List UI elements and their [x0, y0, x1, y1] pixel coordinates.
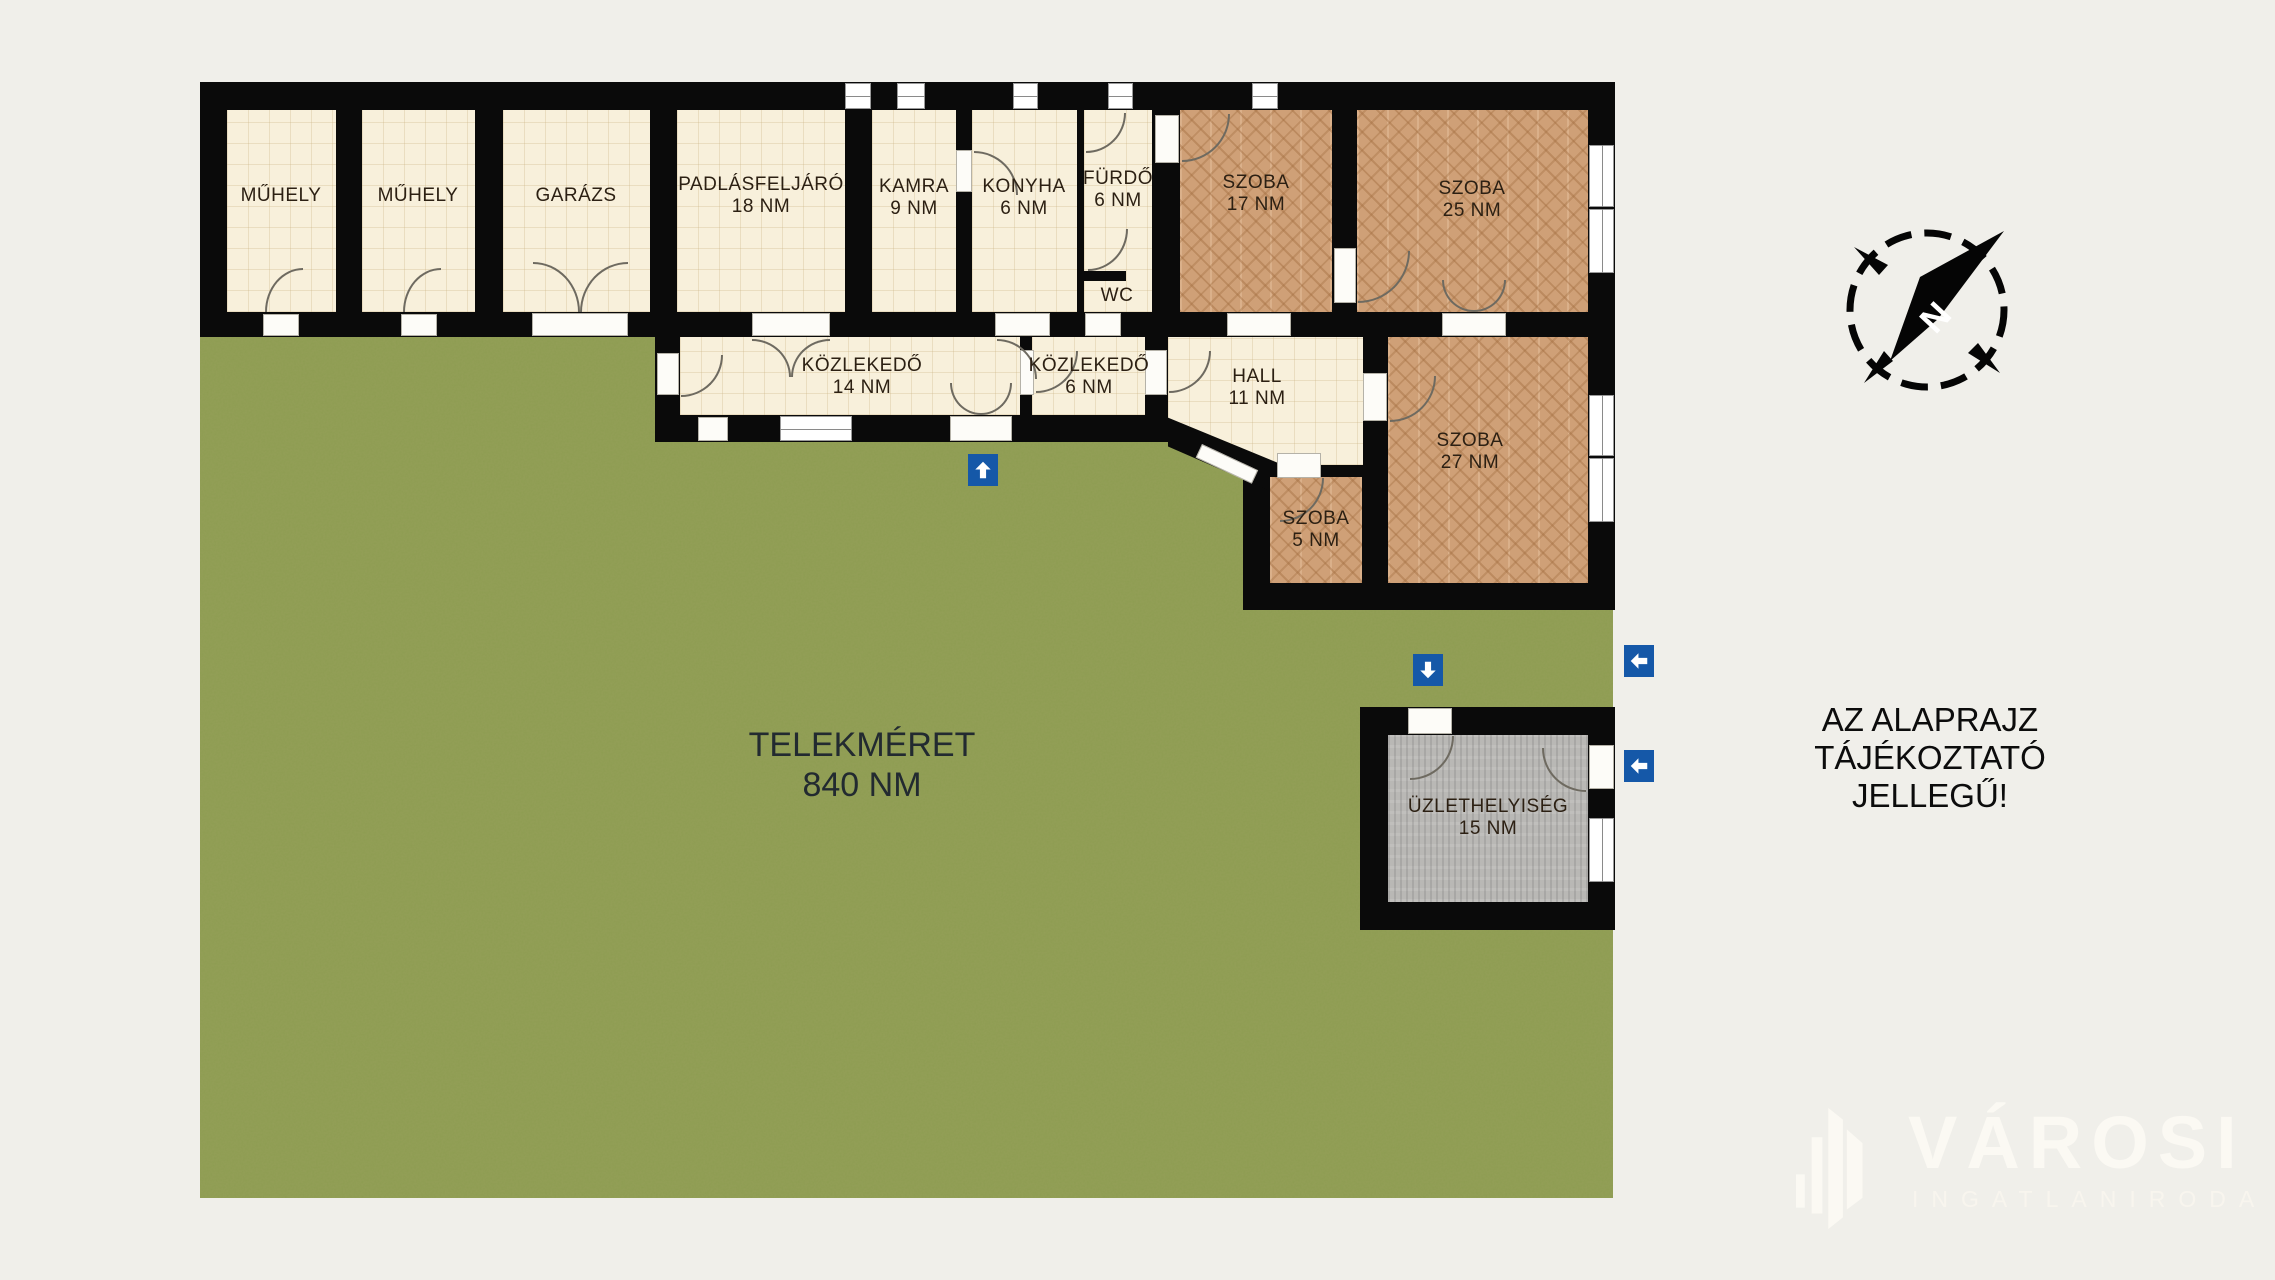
door-opening — [752, 313, 830, 336]
room-label-szoba-17: SZOBA 17 NM — [1223, 172, 1290, 216]
window — [1589, 458, 1614, 522]
window — [1589, 209, 1614, 273]
door-opening — [1334, 248, 1356, 303]
door-opening — [956, 150, 972, 192]
window — [1108, 83, 1133, 109]
door-opening — [1085, 313, 1121, 336]
room-label-kamra: KAMRA 9 NM — [879, 176, 949, 220]
room-label-kozlekedo-6: KÖZLEKEDŐ 6 NM — [1029, 355, 1150, 399]
brand-name: VÁROSI — [1908, 1104, 2267, 1182]
entrance-arrow-up-icon — [968, 454, 998, 486]
window — [1589, 395, 1614, 456]
room-label-muhely-1: MŰHELY — [241, 185, 322, 207]
door-opening — [1408, 708, 1452, 734]
window — [1252, 83, 1278, 109]
door-opening — [1277, 453, 1321, 478]
brand-building-icon — [1796, 1104, 1884, 1234]
compass-rose-icon: N — [1832, 215, 2022, 405]
window — [845, 83, 871, 109]
entrance-arrow-left-icon — [1624, 750, 1654, 782]
room-label-szoba-27: SZOBA 27 NM — [1437, 430, 1504, 474]
brand-logo-text: VÁROSI INGATLANIRODA — [1908, 1104, 2267, 1212]
door-opening — [1442, 313, 1506, 336]
window — [1589, 145, 1614, 207]
door-opening — [950, 416, 1012, 441]
room-label-padlasfeljaro: PADLÁSFELJÁRÓ 18 NM — [678, 174, 844, 218]
entrance-arrow-left-icon — [1624, 645, 1654, 677]
door-opening — [263, 314, 299, 336]
room-label-furdo: FÜRDŐ 6 NM — [1083, 168, 1153, 212]
door-opening — [995, 313, 1050, 336]
wall-wc-divider — [1084, 271, 1126, 281]
window — [897, 83, 925, 109]
window — [780, 416, 852, 441]
door-opening — [1227, 313, 1291, 336]
brand-logo: VÁROSI INGATLANIRODA — [1796, 1104, 2267, 1234]
room-label-konyha: KONYHA 6 NM — [982, 176, 1065, 220]
door-opening — [1155, 115, 1179, 163]
room-label-garazs: GARÁZS — [535, 185, 616, 207]
door-opening — [657, 353, 679, 395]
room-label-hall: HALL 11 NM — [1228, 366, 1285, 410]
room-label-uzlethelyiseg: ÜZLETHELYISÉG 15 NM — [1408, 796, 1568, 840]
garden-size-label: TELEKMÉRET 840 NM — [749, 725, 976, 805]
door-opening — [532, 313, 628, 336]
room-label-szoba-25: SZOBA 25 NM — [1439, 178, 1506, 222]
room-label-kozlekedo-14: KÖZLEKEDŐ 14 NM — [802, 355, 923, 399]
disclaimer-text: AZ ALAPRAJZ TÁJÉKOZTATÓ JELLEGŰ! — [1810, 701, 2050, 815]
brand-subtitle: INGATLANIRODA — [1912, 1186, 2267, 1212]
door-opening — [401, 314, 437, 336]
entrance-arrow-down-icon — [1413, 654, 1443, 686]
door-opening — [698, 417, 728, 441]
room-label-szoba-5: SZOBA 5 NM — [1283, 508, 1350, 552]
room-label-muhely-2: MŰHELY — [378, 185, 459, 207]
window — [1013, 83, 1038, 109]
window — [1589, 818, 1614, 882]
door-opening — [1363, 373, 1387, 421]
room-label-wc: WC — [1101, 285, 1134, 307]
door-opening — [1589, 745, 1614, 789]
